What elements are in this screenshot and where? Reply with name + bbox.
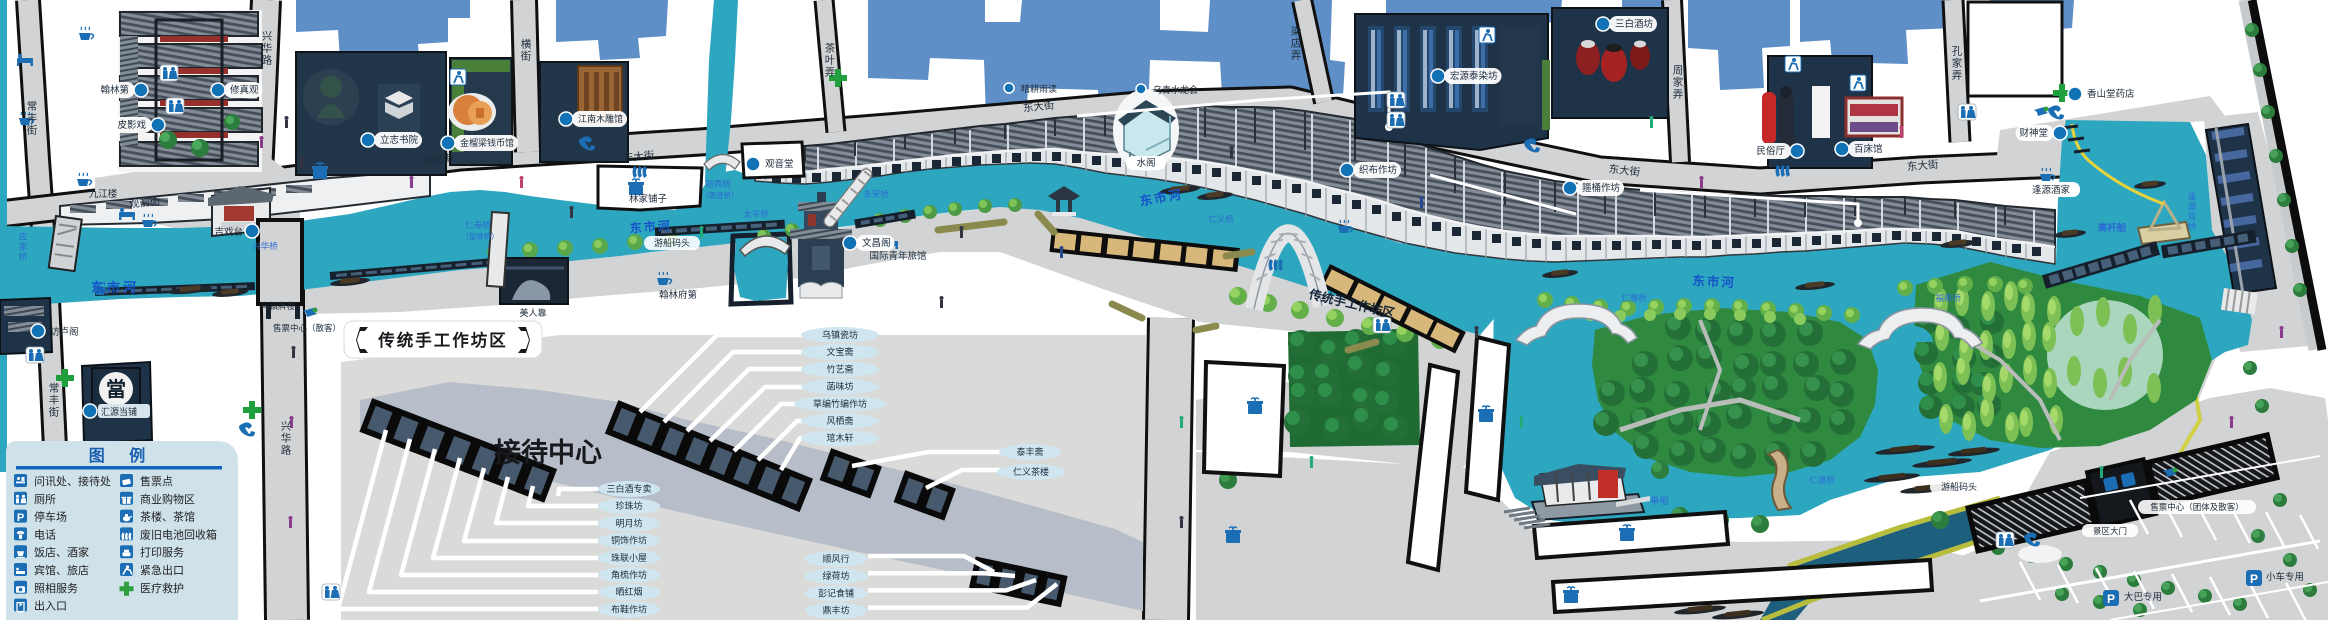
svg-text:商业购物区: 商业购物区: [140, 492, 195, 506]
svg-text:孔: 孔: [1952, 44, 1963, 57]
svg-text:茶: 茶: [825, 41, 836, 54]
svg-text:三白酒专卖: 三白酒专卖: [606, 483, 651, 494]
svg-text:水阁: 水阁: [1136, 157, 1155, 169]
svg-text:翰林第: 翰林第: [100, 84, 129, 96]
svg-text:拳船: 拳船: [1650, 495, 1670, 507]
svg-text:菡味坊: 菡味坊: [826, 381, 853, 392]
svg-text:厕所: 厕所: [34, 493, 56, 506]
svg-text:仁惠桥: 仁惠桥: [1621, 293, 1647, 303]
svg-text:医疗救护: 医疗救护: [140, 581, 184, 595]
svg-text:晴耕雨读: 晴耕雨读: [1021, 83, 1057, 94]
svg-text:弄: 弄: [1952, 69, 1963, 81]
svg-text:大巴专用: 大巴专用: [2124, 591, 2162, 603]
svg-text:三白酒坊: 三白酒坊: [1615, 18, 1654, 30]
svg-text:路: 路: [262, 53, 273, 66]
svg-text:香山堂药店: 香山堂药店: [2087, 88, 2135, 100]
svg-text:仁义桥: 仁义桥: [1208, 214, 1234, 224]
svg-text:乌镇牌楼: 乌镇牌楼: [261, 301, 296, 311]
svg-text:汇源当铺: 汇源当铺: [101, 406, 137, 417]
svg-text:明月坊: 明月坊: [615, 517, 642, 528]
svg-text:桥: 桥: [19, 252, 28, 262]
svg-text:风栖斋: 风栖斋: [826, 415, 853, 426]
svg-text:停车场: 停车场: [34, 510, 67, 524]
svg-text:路: 路: [281, 443, 292, 456]
svg-text:应: 应: [19, 232, 28, 242]
svg-text:當: 當: [106, 378, 126, 401]
svg-text:乌青水龙会: 乌青水龙会: [1153, 84, 1198, 95]
svg-text:珠联小屋: 珠联小屋: [611, 552, 647, 563]
svg-text:太平桥: 太平桥: [743, 209, 769, 219]
svg-text:出入口: 出入口: [34, 599, 67, 613]
svg-text:翰林府第: 翰林府第: [659, 289, 697, 301]
svg-text:电话: 电话: [34, 528, 56, 541]
svg-text:逢源酒家: 逢源酒家: [2032, 184, 2071, 196]
svg-text:常: 常: [27, 99, 38, 112]
svg-text:桥: 桥: [2188, 222, 2197, 232]
svg-text:店: 店: [1291, 36, 1302, 49]
svg-text:紧急出口: 紧急出口: [140, 563, 184, 577]
svg-text:售票中心（散客）: 售票中心（散客）: [273, 323, 341, 333]
svg-text:竹艺斋: 竹艺斋: [826, 363, 853, 374]
svg-text:琯木轩: 琯木轩: [826, 432, 853, 443]
svg-text:百床馆: 百床馆: [1854, 143, 1883, 155]
svg-text:饭店、酒家: 饭店、酒家: [34, 545, 89, 559]
svg-text:文宝斋: 文宝斋: [826, 346, 853, 357]
svg-text:兴华桥: 兴华桥: [252, 241, 278, 251]
svg-text:街: 街: [49, 405, 60, 418]
svg-text:弄: 弄: [1291, 49, 1302, 61]
svg-text:弄: 弄: [1673, 88, 1684, 100]
svg-text:弄: 弄: [825, 66, 836, 78]
svg-text:家: 家: [1673, 75, 1684, 88]
svg-text:茶楼、茶馆: 茶楼、茶馆: [140, 510, 195, 524]
svg-text:图 例: 图 例: [89, 446, 155, 465]
svg-text:绿荷坊: 绿荷坊: [822, 570, 849, 581]
svg-text:东市河: 东市河: [91, 280, 139, 295]
svg-text:彭记食铺: 彭记食铺: [818, 587, 854, 598]
svg-text:街: 街: [521, 49, 532, 62]
svg-text:问讯处、接待处: 问讯处、接待处: [34, 474, 111, 488]
svg-text:珍珠坊: 珍珠坊: [615, 500, 642, 511]
svg-text:立志书院: 立志书院: [380, 134, 419, 146]
svg-text:叶: 叶: [825, 54, 836, 66]
svg-text:废旧电池回收箱: 废旧电池回收箱: [140, 527, 217, 541]
svg-text:金榴梁钱币馆: 金榴梁钱币馆: [460, 137, 514, 148]
svg-text:传统手工作坊区: 传统手工作坊区: [377, 330, 508, 350]
svg-text:P: P: [2107, 592, 2115, 606]
svg-text:丰: 丰: [49, 393, 60, 406]
svg-text:打印服务: 打印服务: [140, 545, 184, 559]
svg-text:横: 横: [521, 37, 532, 50]
svg-text:福惠桥: 福惠桥: [1935, 293, 1961, 303]
svg-text:小车专用: 小车专用: [2266, 571, 2304, 583]
svg-text:东市河: 东市河: [1692, 273, 1736, 290]
svg-text:（望佛桥）: （望佛桥）: [461, 231, 499, 241]
svg-text:访卢阁: 访卢阁: [50, 326, 79, 338]
svg-text:街: 街: [27, 123, 38, 136]
svg-text:华: 华: [262, 41, 273, 54]
svg-text:景区大门: 景区大门: [2093, 526, 2127, 536]
svg-text:P: P: [2250, 572, 2258, 586]
svg-text:家: 家: [19, 242, 28, 252]
svg-text:民俗厅: 民俗厅: [1756, 145, 1785, 157]
svg-text:九江楼: 九江楼: [89, 188, 118, 200]
svg-text:源: 源: [2188, 202, 2197, 212]
svg-text:逢: 逢: [2188, 192, 2197, 202]
svg-text:游船码头: 游船码头: [1941, 481, 1977, 492]
svg-text:织布作坊: 织布作坊: [1359, 164, 1398, 176]
svg-text:东市河: 东市河: [629, 218, 672, 236]
svg-text:高杆船: 高杆船: [2098, 222, 2127, 234]
svg-text:家: 家: [1952, 56, 1963, 69]
svg-text:观音堂: 观音堂: [765, 158, 794, 170]
svg-text:箍桶作坊: 箍桶作坊: [1582, 182, 1621, 194]
svg-text:泰丰斋: 泰丰斋: [1016, 446, 1043, 457]
svg-text:游船码头: 游船码头: [654, 237, 690, 248]
svg-text:售票中心（团体及散客）: 售票中心（团体及散客）: [2150, 502, 2244, 512]
svg-text:国际青年旅馆: 国际青年旅馆: [869, 250, 926, 262]
svg-text:染: 染: [1291, 24, 1302, 37]
svg-text:江南木雕馆: 江南木雕馆: [578, 113, 623, 124]
svg-text:宏源泰染坊: 宏源泰染坊: [1450, 70, 1498, 82]
svg-text:铜饰作坊: 铜饰作坊: [611, 535, 647, 546]
svg-text:宾馆、旅店: 宾馆、旅店: [34, 563, 89, 577]
svg-text:顺风行: 顺风行: [822, 553, 849, 564]
svg-text:吉戏台: 吉戏台: [214, 226, 243, 238]
svg-text:草编竹编作坊: 草编竹编作坊: [813, 398, 867, 409]
svg-text:售票点: 售票点: [140, 474, 173, 488]
svg-text:挹秀桥: 挹秀桥: [705, 179, 731, 189]
svg-text:丰: 丰: [27, 111, 38, 124]
svg-text:双: 双: [2188, 212, 2197, 222]
svg-text:修真观: 修真观: [230, 84, 259, 96]
svg-text:常: 常: [49, 381, 60, 394]
svg-text:P: P: [17, 512, 24, 524]
svg-text:鼎丰坊: 鼎丰坊: [822, 605, 849, 616]
svg-text:永安桥: 永安桥: [863, 189, 889, 199]
svg-text:兴: 兴: [262, 30, 273, 42]
svg-text:财神堂: 财神堂: [2019, 127, 2048, 139]
svg-text:仁义茶楼: 仁义茶楼: [1013, 466, 1049, 477]
svg-text:华: 华: [281, 431, 292, 444]
svg-text:林家铺子: 林家铺子: [629, 193, 668, 205]
svg-text:角梳作坊: 角梳作坊: [611, 569, 647, 580]
svg-text:文昌阁: 文昌阁: [862, 237, 891, 249]
svg-text:兴: 兴: [281, 420, 292, 432]
svg-text:仁寿桥: 仁寿桥: [465, 220, 491, 230]
svg-text:仁渡桥: 仁渡桥: [1809, 475, 1835, 485]
svg-text:美人靠: 美人靠: [519, 307, 546, 318]
svg-text:皮影戏: 皮影戏: [117, 119, 146, 131]
svg-text:乌镇瓷坊: 乌镇瓷坊: [822, 329, 858, 340]
svg-text:接待中心: 接待中心: [494, 438, 602, 468]
svg-text:晒红烟: 晒红烟: [615, 586, 642, 597]
svg-text:（观音桥）: （观音桥）: [701, 190, 739, 200]
svg-text:布鞋作坊: 布鞋作坊: [611, 603, 647, 614]
svg-text:周: 周: [1673, 64, 1684, 76]
svg-text:照相服务: 照相服务: [34, 582, 78, 595]
